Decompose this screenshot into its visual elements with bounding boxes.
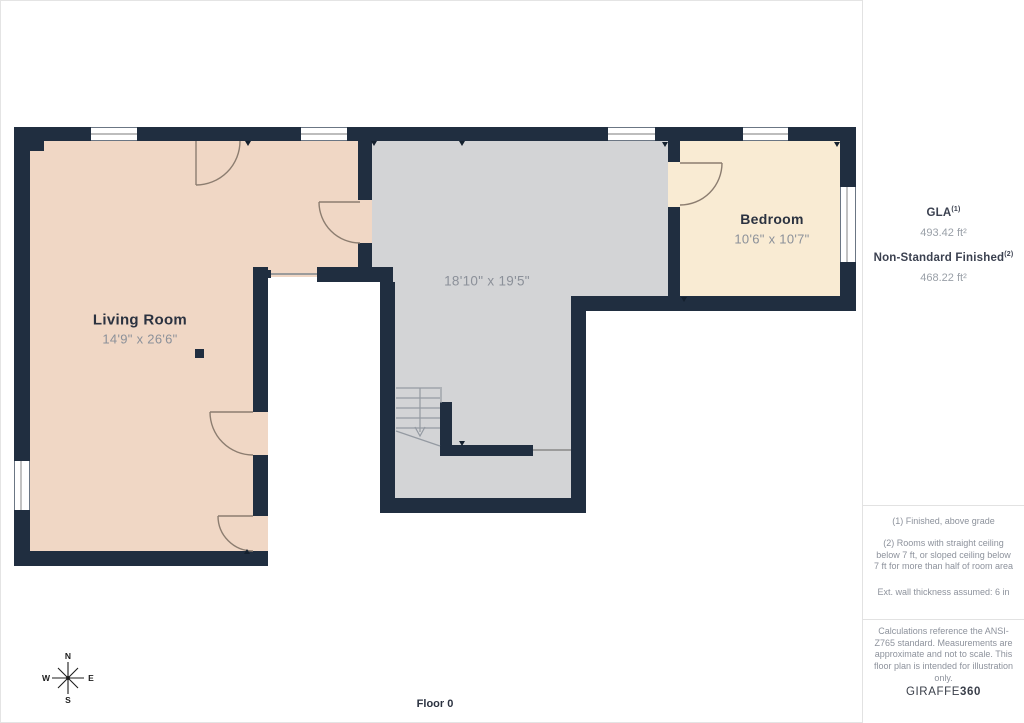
door-gap [253,516,268,551]
wall [571,296,586,513]
column [195,349,204,358]
living-room-dimensions: 14'9" x 26'6" [102,332,177,347]
door-gap [358,200,372,243]
wall [253,267,268,412]
bedroom-dimensions: 10'6" x 10'7" [734,232,809,247]
void-area [268,277,380,560]
gla-superscript: (1) [951,206,960,213]
window [608,127,655,141]
living-room-floor [30,267,268,551]
compass-north: N [65,651,71,661]
compass-star [52,662,84,694]
gla-label: GLA(1) [863,206,1024,219]
hallway-floor [268,267,317,277]
giraffe360-logo: GIRAFFE360 [863,686,1024,698]
gla-label-text: GLA [926,207,951,219]
wall [571,296,856,311]
sidebar: GLA(1) 493.42 ft² Non-Standard Finished(… [862,0,1024,723]
living-room-label: Living Room [93,312,187,329]
wall [668,141,680,162]
wall [317,267,393,282]
logo-360: 360 [960,686,981,698]
wall [668,207,680,296]
living-room-floor [30,141,358,267]
nsf-superscript: (2) [1004,251,1013,258]
window [840,187,856,262]
wall [380,498,586,513]
wall [253,455,268,516]
footnote-2: (2) Rooms with straight ceiling below 7 … [863,538,1024,573]
compass-west: W [42,673,50,683]
unfinished-room-floor [395,296,571,498]
window [91,127,137,141]
sidebar-divider [863,505,1024,506]
nsf-label-text: Non-Standard Finished [874,252,1005,264]
sidebar-divider [863,619,1024,620]
stair-wall [440,445,533,456]
floor-label: Floor 0 [417,698,454,710]
logo-text: GIRAFFE [906,686,960,698]
non-standard-finished-label: Non-Standard Finished(2) [863,251,1024,264]
disclaimer: Calculations reference the ANSI-Z765 sta… [863,626,1024,684]
bedroom-label: Bedroom [740,211,804,227]
window [743,127,788,141]
footnote-3: Ext. wall thickness assumed: 6 in [863,587,1024,599]
wall [14,551,268,566]
window [301,127,347,141]
gla-value: 493.42 ft² [863,227,1024,239]
door-gap [253,412,268,455]
wall [358,243,372,282]
door-gap [668,162,680,207]
wall [380,282,395,513]
compass-south: S [65,695,71,705]
compass-east: E [88,673,94,683]
wall [358,141,372,200]
floor-plan-page: Living Room 14'9" x 26'6" 18'10" x 19'5"… [0,0,1024,723]
unfinished-room-dimensions: 18'10" x 19'5" [444,274,530,289]
window [14,461,30,510]
wall [14,127,856,141]
wall [30,141,44,151]
non-standard-finished-value: 468.22 ft² [863,272,1024,284]
floor-plan: Living Room 14'9" x 26'6" 18'10" x 19'5"… [0,0,862,723]
footnote-1: (1) Finished, above grade [863,516,1024,528]
